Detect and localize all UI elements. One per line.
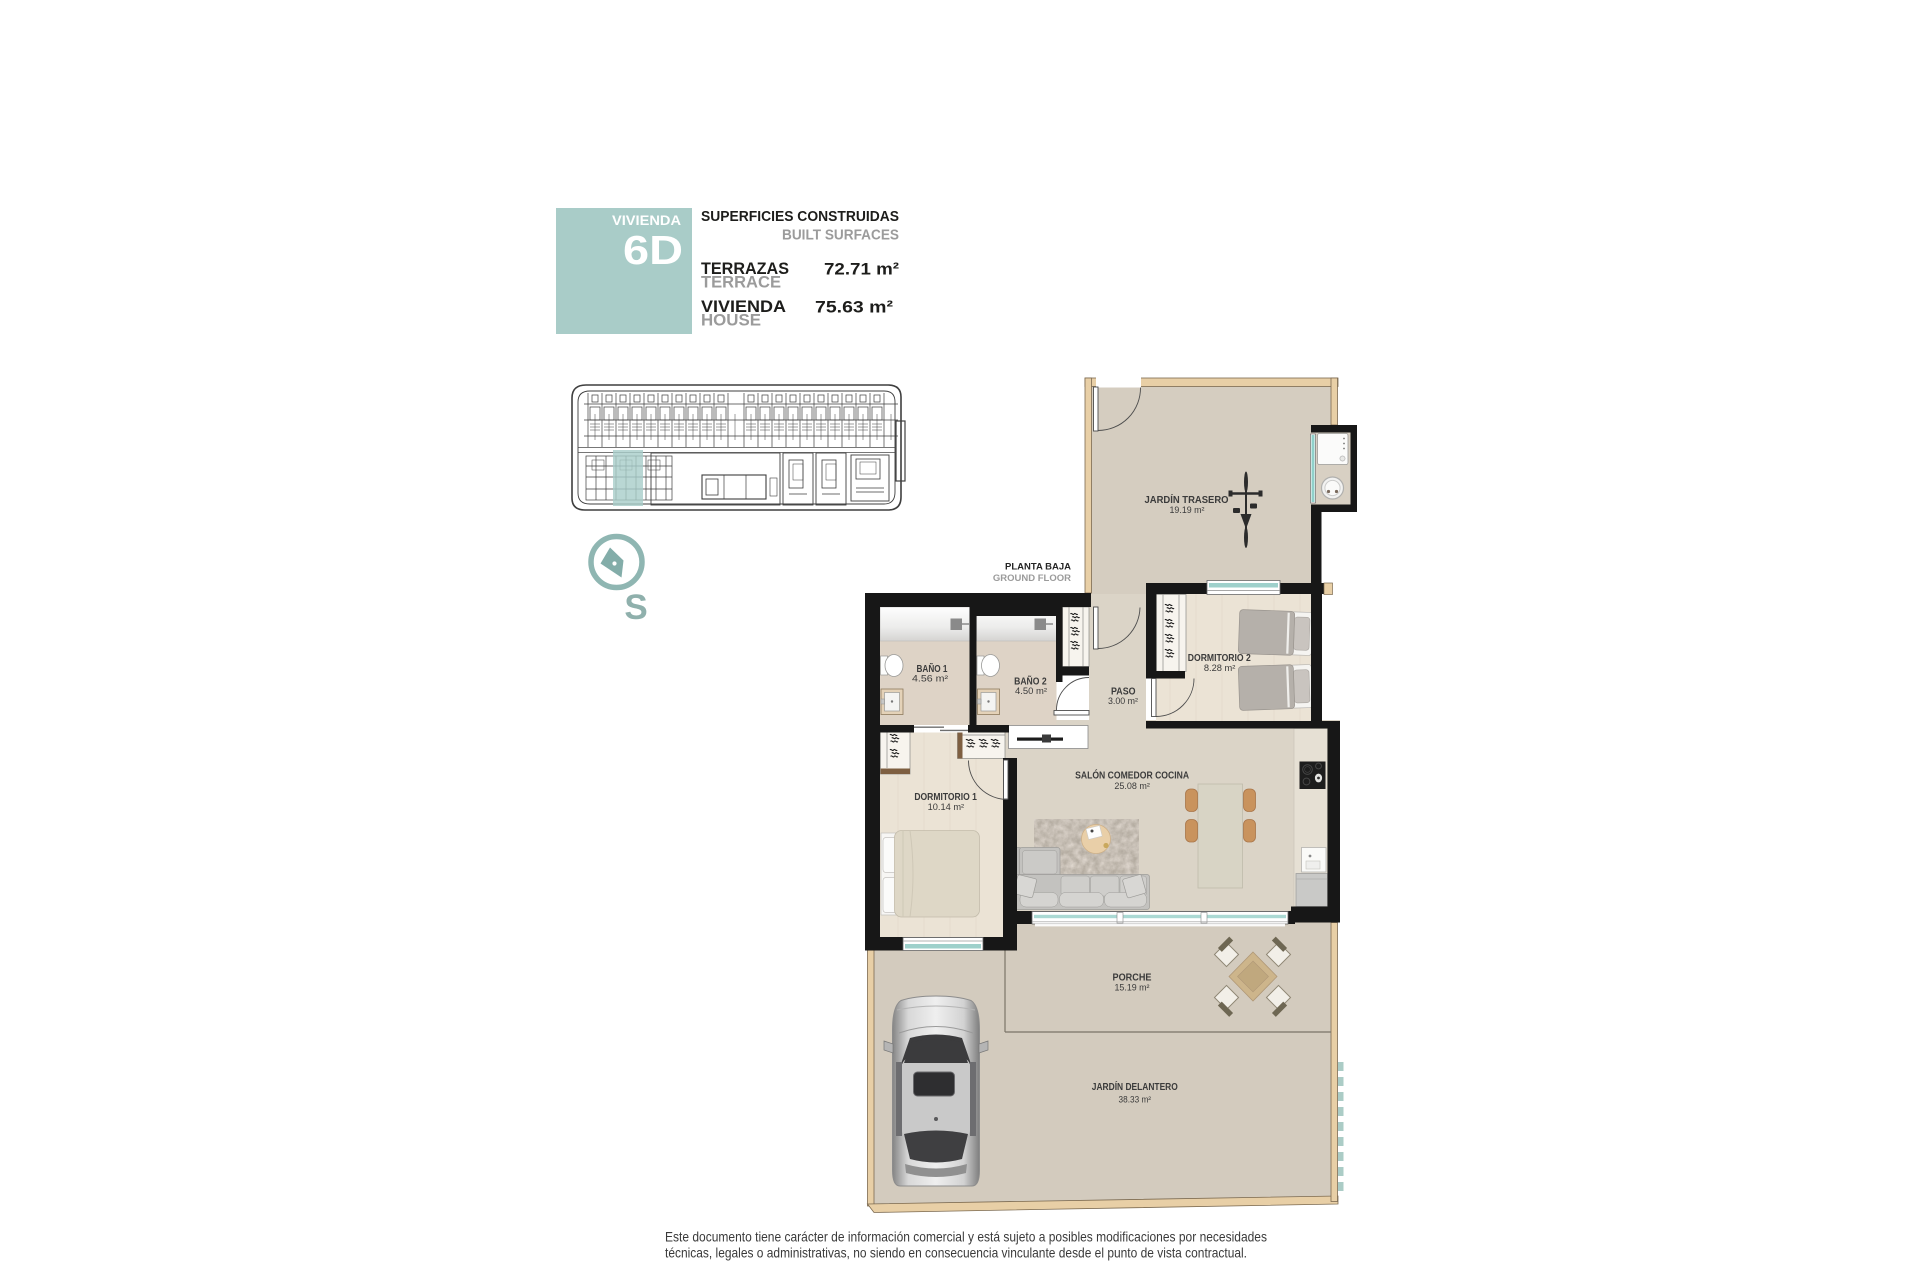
- svg-text:BUILT SURFACES: BUILT SURFACES: [782, 228, 899, 244]
- svg-text:JARDÍN DELANTERO: JARDÍN DELANTERO: [1092, 1080, 1178, 1093]
- svg-text:15.19 m²: 15.19 m²: [1115, 983, 1150, 993]
- svg-text:HOUSE: HOUSE: [701, 312, 761, 330]
- svg-text:TERRACE: TERRACE: [701, 274, 781, 292]
- svg-text:25.08 m²: 25.08 m²: [1114, 781, 1150, 791]
- svg-text:38.33 m²: 38.33 m²: [1119, 1095, 1152, 1105]
- svg-text:SALÓN COMEDOR COCINA: SALÓN COMEDOR COCINA: [1075, 769, 1189, 782]
- svg-text:Este documento tiene carácter: Este documento tiene carácter de informa…: [665, 1229, 1267, 1245]
- svg-text:DORMITORIO 2: DORMITORIO 2: [1188, 652, 1251, 664]
- svg-text:75.63 m²: 75.63 m²: [815, 299, 894, 317]
- svg-text:SUPERFICIES CONSTRUIDAS: SUPERFICIES CONSTRUIDAS: [701, 209, 899, 225]
- svg-text:72.71 m²: 72.71 m²: [824, 261, 900, 279]
- svg-text:S: S: [624, 588, 647, 627]
- svg-text:4.50 m²: 4.50 m²: [1015, 686, 1047, 696]
- svg-text:19.19 m²: 19.19 m²: [1170, 505, 1205, 515]
- svg-text:3.00 m²: 3.00 m²: [1108, 696, 1138, 706]
- svg-text:4.56 m²: 4.56 m²: [912, 674, 948, 684]
- svg-text:10.14 m²: 10.14 m²: [928, 802, 965, 812]
- svg-text:GROUND FLOOR: GROUND FLOOR: [993, 573, 1071, 584]
- svg-text:PLANTA BAJA: PLANTA BAJA: [1005, 562, 1071, 573]
- svg-text:VIVIENDA: VIVIENDA: [612, 213, 681, 228]
- svg-text:8.28 m²: 8.28 m²: [1204, 663, 1236, 673]
- svg-text:técnicas, legales o administra: técnicas, legales o administrativas, no …: [665, 1245, 1247, 1261]
- svg-text:6D: 6D: [623, 227, 683, 273]
